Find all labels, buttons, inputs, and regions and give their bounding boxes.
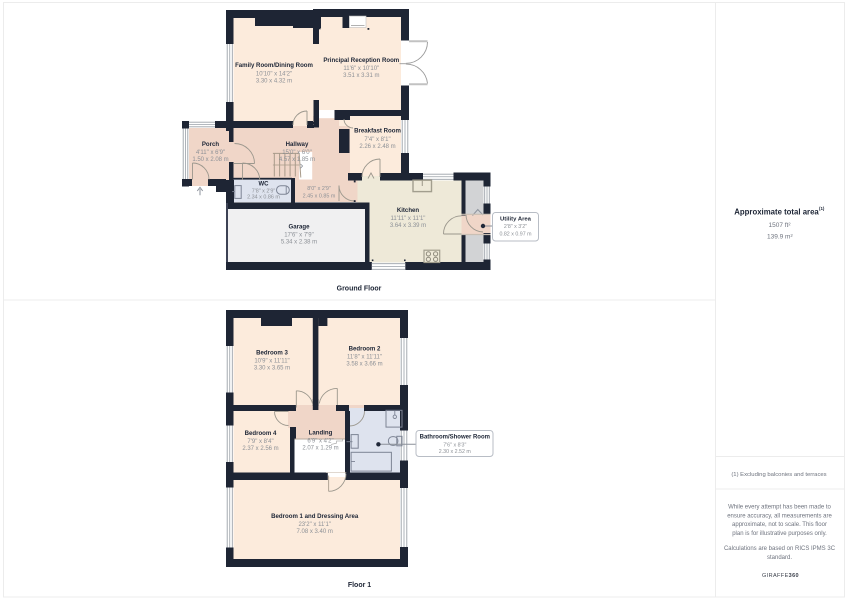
svg-text:3.30 x 4.32 m: 3.30 x 4.32 m (256, 78, 292, 84)
svg-text:3.64 x 3.39 m: 3.64 x 3.39 m (390, 223, 426, 229)
svg-text:Family Room/Dining Room: Family Room/Dining Room (235, 62, 313, 69)
svg-text:Garage: Garage (288, 223, 310, 230)
svg-text:Bedroom 1 and Dressing Area: Bedroom 1 and Dressing Area (271, 513, 359, 520)
svg-text:standard.: standard. (767, 555, 792, 561)
svg-text:Hallway: Hallway (286, 141, 309, 148)
svg-text:10'10" x 14'2": 10'10" x 14'2" (256, 71, 292, 77)
svg-text:11'11" x 11'1": 11'11" x 11'1" (391, 216, 426, 222)
svg-text:Bedroom 4: Bedroom 4 (245, 430, 277, 437)
svg-text:7'9" x 8'4": 7'9" x 8'4" (247, 439, 273, 445)
svg-text:6'9" x 4'2": 6'9" x 4'2" (307, 439, 333, 445)
svg-text:Ground Floor: Ground Floor (337, 286, 382, 293)
svg-text:17'6" x 7'9": 17'6" x 7'9" (284, 233, 314, 239)
svg-text:10'9" x 11'11": 10'9" x 11'11" (254, 359, 289, 365)
svg-text:Porch: Porch (202, 141, 220, 148)
svg-text:Breakfast Room: Breakfast Room (354, 128, 401, 135)
svg-text:1507 ft²: 1507 ft² (768, 222, 791, 229)
svg-text:Principal Reception Room: Principal Reception Room (323, 57, 399, 64)
svg-text:7'4" x 8'1": 7'4" x 8'1" (364, 137, 390, 143)
svg-text:ensure accuracy, all measureme: ensure accuracy, all measurements are (727, 513, 832, 519)
svg-text:0.82 x 0.97 m: 0.82 x 0.97 m (499, 231, 532, 237)
svg-text:2.34 x 0.86 m: 2.34 x 0.86 m (247, 195, 280, 201)
svg-text:1.50 x 2.08 m: 1.50 x 2.08 m (192, 157, 228, 163)
svg-text:11'6" x 10'10": 11'6" x 10'10" (343, 66, 379, 72)
svg-text:GIRAFFE360: GIRAFFE360 (762, 573, 799, 579)
svg-text:2.30 x 2.52 m: 2.30 x 2.52 m (439, 449, 472, 455)
svg-text:(1) Excluding balconies and te: (1) Excluding balconies and terraces (731, 472, 826, 478)
svg-text:Approximate total area: Approximate total area (734, 207, 819, 216)
svg-text:approximate, not to scale. Thi: approximate, not to scale. This floor (732, 522, 827, 528)
svg-text:(1): (1) (819, 206, 825, 211)
svg-text:Bedroom 2: Bedroom 2 (349, 346, 381, 353)
svg-text:3.58 x 3.66 m: 3.58 x 3.66 m (346, 362, 382, 368)
svg-text:While every attempt has been m: While every attempt has been made to (728, 505, 831, 511)
svg-text:7.08 x 3.40 m: 7.08 x 3.40 m (297, 529, 333, 535)
svg-text:2'8" x 3'2": 2'8" x 3'2" (504, 224, 527, 230)
svg-text:2.45 x 0.85 m: 2.45 x 0.85 m (303, 193, 336, 199)
svg-text:WC: WC (259, 182, 270, 188)
svg-text:Floor 1: Floor 1 (348, 582, 371, 589)
svg-text:Bathroom/Shower Room: Bathroom/Shower Room (420, 435, 490, 441)
svg-text:5.34 x 2.38 m: 5.34 x 2.38 m (281, 240, 317, 246)
svg-text:7'6" x 8'3": 7'6" x 8'3" (443, 442, 466, 448)
svg-text:8'0" x 2'9": 8'0" x 2'9" (307, 186, 331, 192)
svg-text:Utility Area: Utility Area (500, 217, 532, 223)
svg-text:Landing: Landing (309, 430, 333, 437)
svg-text:Calculations are based on RICS: Calculations are based on RICS IPMS 3C (724, 546, 836, 552)
svg-text:3.51 x 3.31 m: 3.51 x 3.31 m (343, 73, 379, 79)
svg-text:11'8" x 11'11": 11'8" x 11'11" (347, 355, 382, 361)
svg-text:4'11" x 6'9": 4'11" x 6'9" (196, 150, 225, 156)
svg-text:139.9 m²: 139.9 m² (767, 234, 793, 241)
svg-text:4.57 x 1.85 m: 4.57 x 1.85 m (279, 157, 315, 163)
svg-text:2.37 x 2.56 m: 2.37 x 2.56 m (242, 446, 278, 452)
svg-text:Kitchen: Kitchen (397, 207, 420, 214)
svg-text:15'0" x 6'0": 15'0" x 6'0" (282, 150, 312, 156)
svg-text:plan is for illustrative purpo: plan is for illustrative purposes only. (732, 531, 827, 537)
svg-text:7'8" x 2'9": 7'8" x 2'9" (252, 189, 276, 195)
svg-text:2.07 x 1.29 m: 2.07 x 1.29 m (302, 446, 338, 452)
svg-text:23'2" x 11'1": 23'2" x 11'1" (298, 522, 330, 528)
svg-text:Bedroom 3: Bedroom 3 (256, 350, 288, 357)
svg-text:3.30 x 3.65 m: 3.30 x 3.65 m (254, 366, 290, 372)
svg-text:2.26 x 2.48 m: 2.26 x 2.48 m (359, 144, 395, 150)
